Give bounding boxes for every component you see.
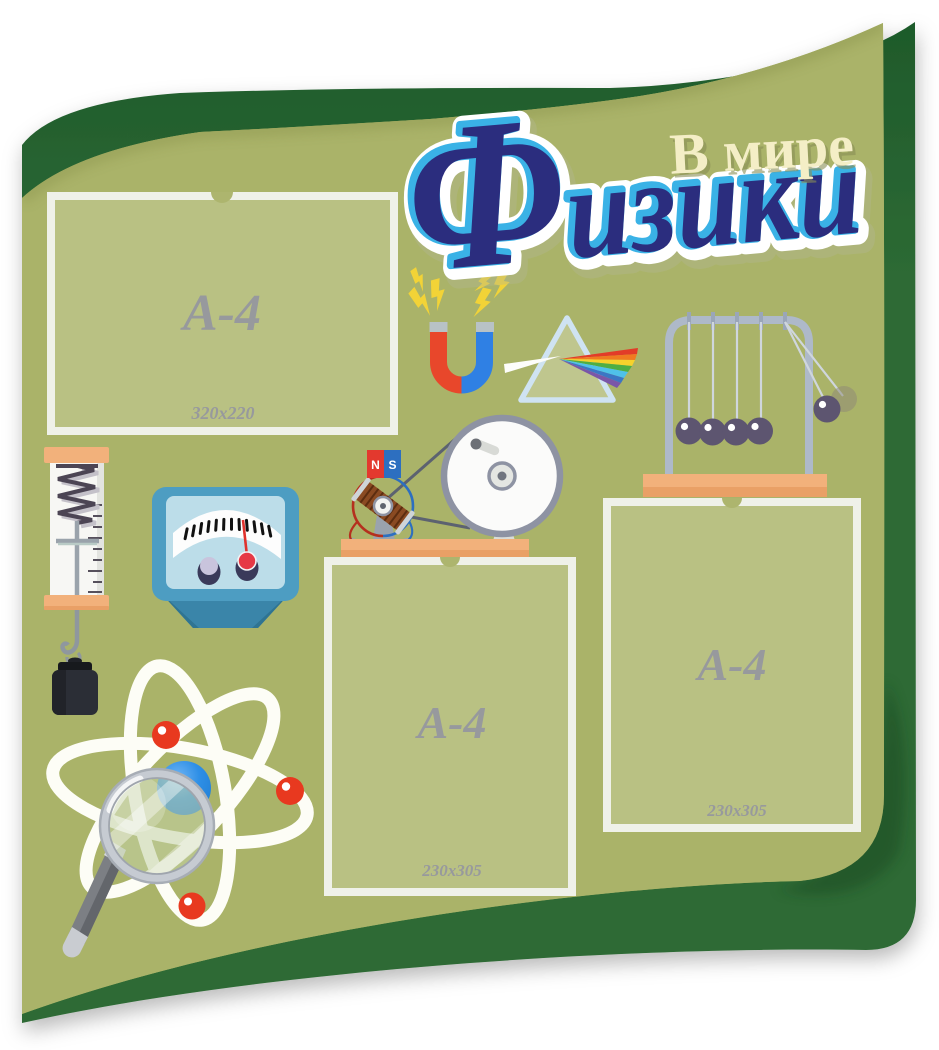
svg-text:А-4: А-4 bbox=[695, 639, 767, 690]
svg-text:230х305: 230х305 bbox=[706, 801, 767, 820]
svg-text:N: N bbox=[371, 458, 380, 472]
svg-text:А-4: А-4 bbox=[415, 697, 487, 748]
svg-text:320х220: 320х220 bbox=[191, 403, 255, 423]
svg-text:230х305: 230х305 bbox=[421, 861, 482, 880]
svg-text:В мире: В мире bbox=[668, 112, 855, 187]
svg-text:А-4: А-4 bbox=[180, 285, 261, 342]
svg-text:S: S bbox=[388, 458, 396, 472]
